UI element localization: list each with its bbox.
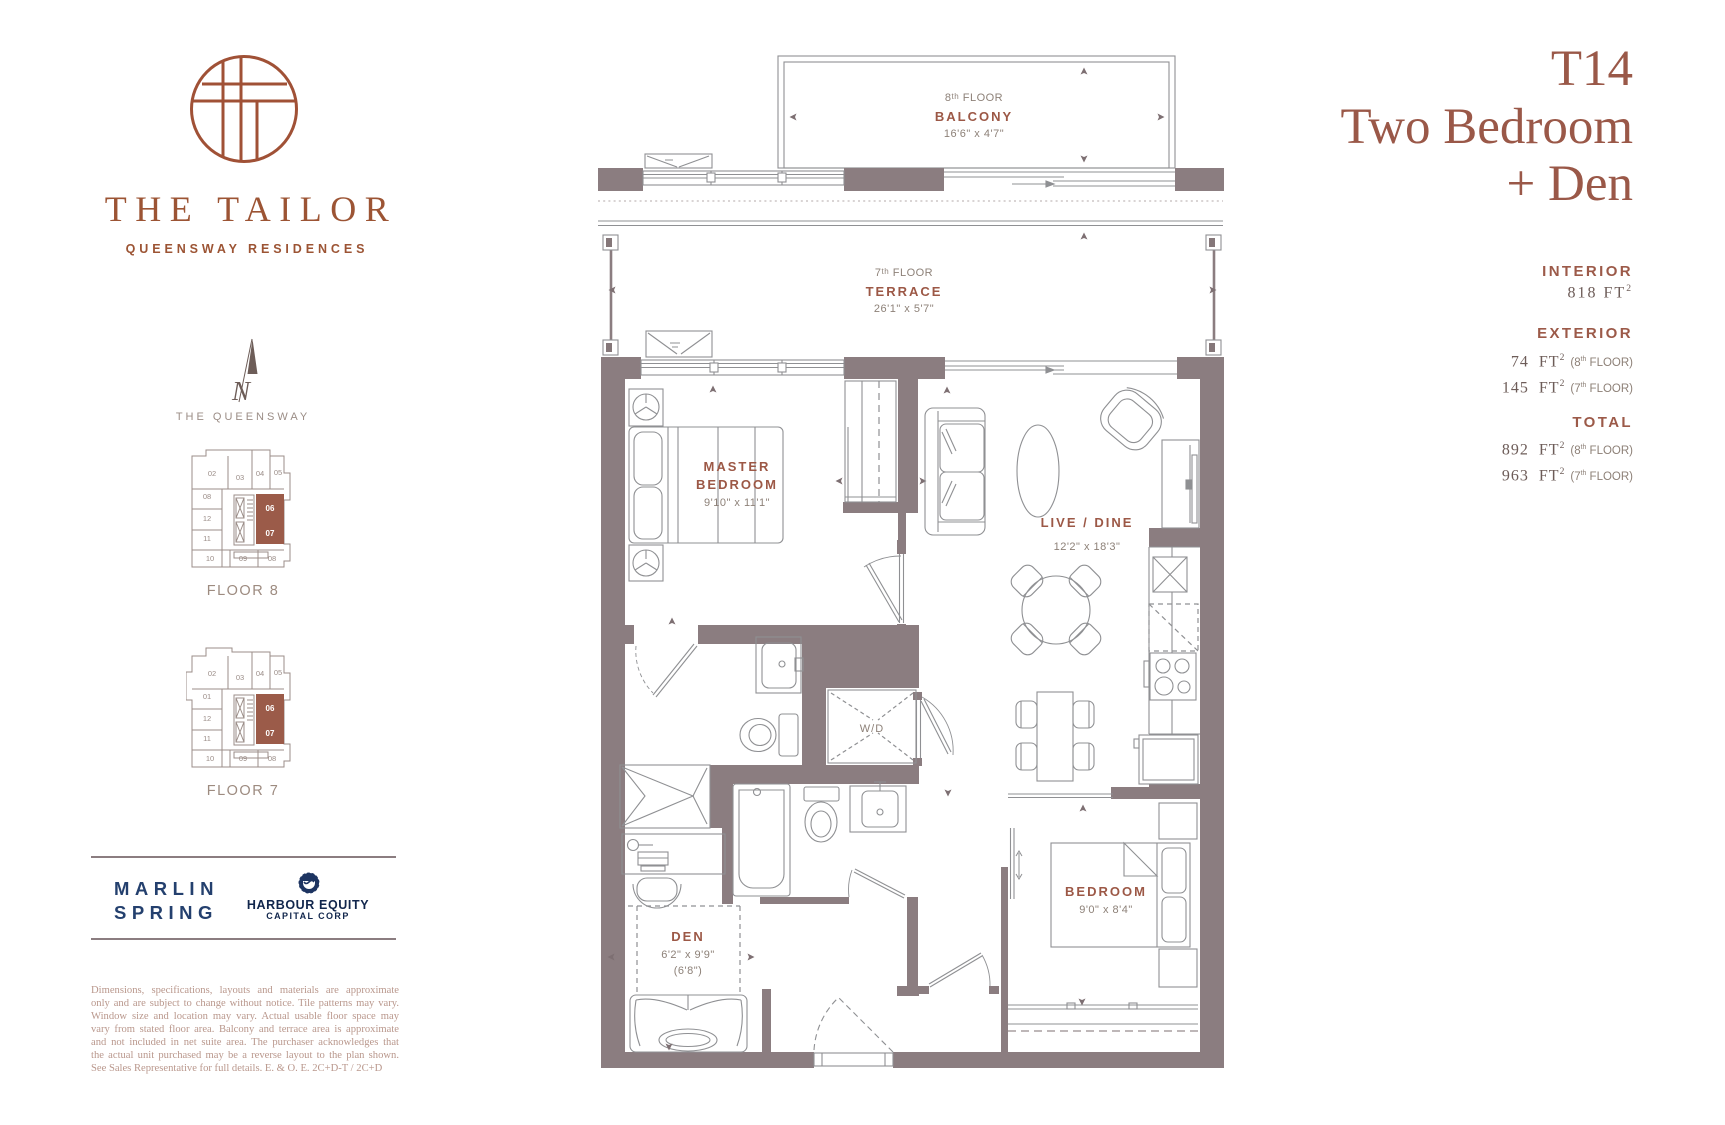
svg-text:06: 06: [266, 504, 275, 513]
svg-text:02: 02: [208, 469, 216, 478]
svg-text:01: 01: [203, 692, 211, 701]
svg-text:05: 05: [274, 468, 282, 477]
svg-text:9'10" x 11'1": 9'10" x 11'1": [704, 497, 770, 509]
svg-text:7th FLOOR: 7th FLOOR: [875, 267, 933, 279]
svg-text:TERRACE: TERRACE: [866, 284, 943, 299]
svg-text:11: 11: [203, 734, 211, 743]
svg-text:12: 12: [203, 514, 211, 523]
svg-text:LIVE / DINE: LIVE / DINE: [1041, 515, 1134, 530]
svg-text:10: 10: [206, 754, 214, 763]
svg-text:W/D: W/D: [860, 723, 884, 735]
svg-text:N: N: [231, 376, 252, 406]
svg-text:BEDROOM: BEDROOM: [696, 477, 778, 492]
svg-text:MASTER: MASTER: [704, 459, 771, 474]
svg-text:03: 03: [236, 673, 244, 682]
svg-text:10: 10: [206, 554, 214, 563]
svg-text:8th FLOOR: 8th FLOOR: [945, 92, 1003, 104]
svg-text:04: 04: [256, 469, 264, 478]
svg-text:6'2" x 9'9": 6'2" x 9'9": [661, 949, 715, 961]
svg-text:05: 05: [274, 668, 282, 677]
svg-text:09: 09: [239, 754, 247, 763]
svg-text:(6'8"): (6'8"): [674, 965, 703, 977]
svg-text:03: 03: [236, 473, 244, 482]
svg-text:07: 07: [266, 529, 275, 538]
svg-text:11: 11: [203, 534, 211, 543]
svg-text:07: 07: [266, 729, 275, 738]
svg-text:DEN: DEN: [671, 929, 704, 944]
svg-text:BALCONY: BALCONY: [935, 109, 1013, 124]
svg-text:12: 12: [203, 714, 211, 723]
svg-text:08: 08: [268, 754, 276, 763]
svg-text:08: 08: [203, 492, 211, 501]
svg-text:08: 08: [268, 554, 276, 563]
svg-text:12'2" x 18'3": 12'2" x 18'3": [1054, 541, 1121, 553]
svg-text:9'0" x 8'4": 9'0" x 8'4": [1079, 904, 1133, 916]
svg-text:26'1" x 5'7": 26'1" x 5'7": [874, 303, 934, 315]
svg-text:09: 09: [239, 554, 247, 563]
svg-text:04: 04: [256, 669, 264, 678]
svg-text:02: 02: [208, 669, 216, 678]
svg-text:06: 06: [266, 704, 275, 713]
svg-text:16'6" x 4'7": 16'6" x 4'7": [944, 128, 1004, 140]
svg-text:BEDROOM: BEDROOM: [1065, 884, 1147, 899]
